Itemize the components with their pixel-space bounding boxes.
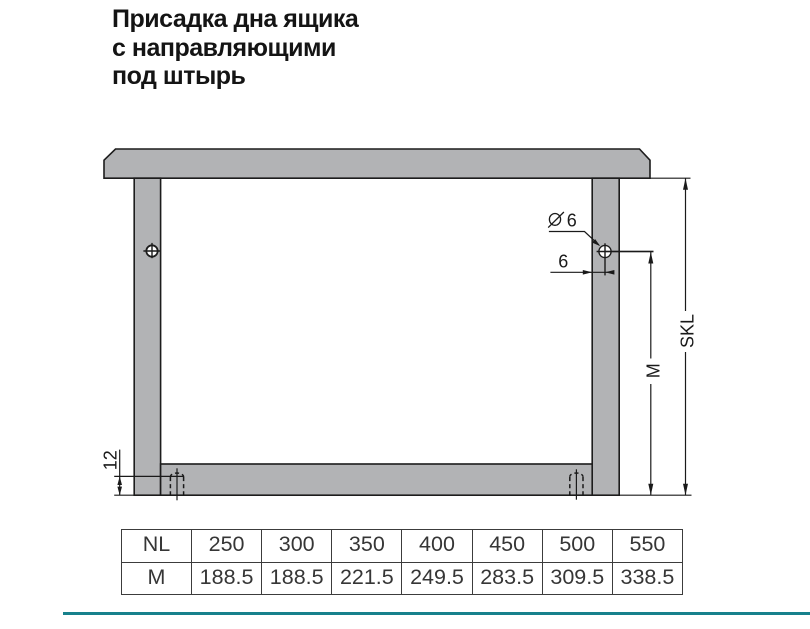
- svg-text:SKL: SKL: [678, 314, 698, 348]
- svg-text:6: 6: [567, 210, 577, 230]
- svg-text:12: 12: [100, 450, 120, 470]
- svg-text:6: 6: [558, 252, 568, 272]
- svg-text:M: M: [643, 363, 663, 378]
